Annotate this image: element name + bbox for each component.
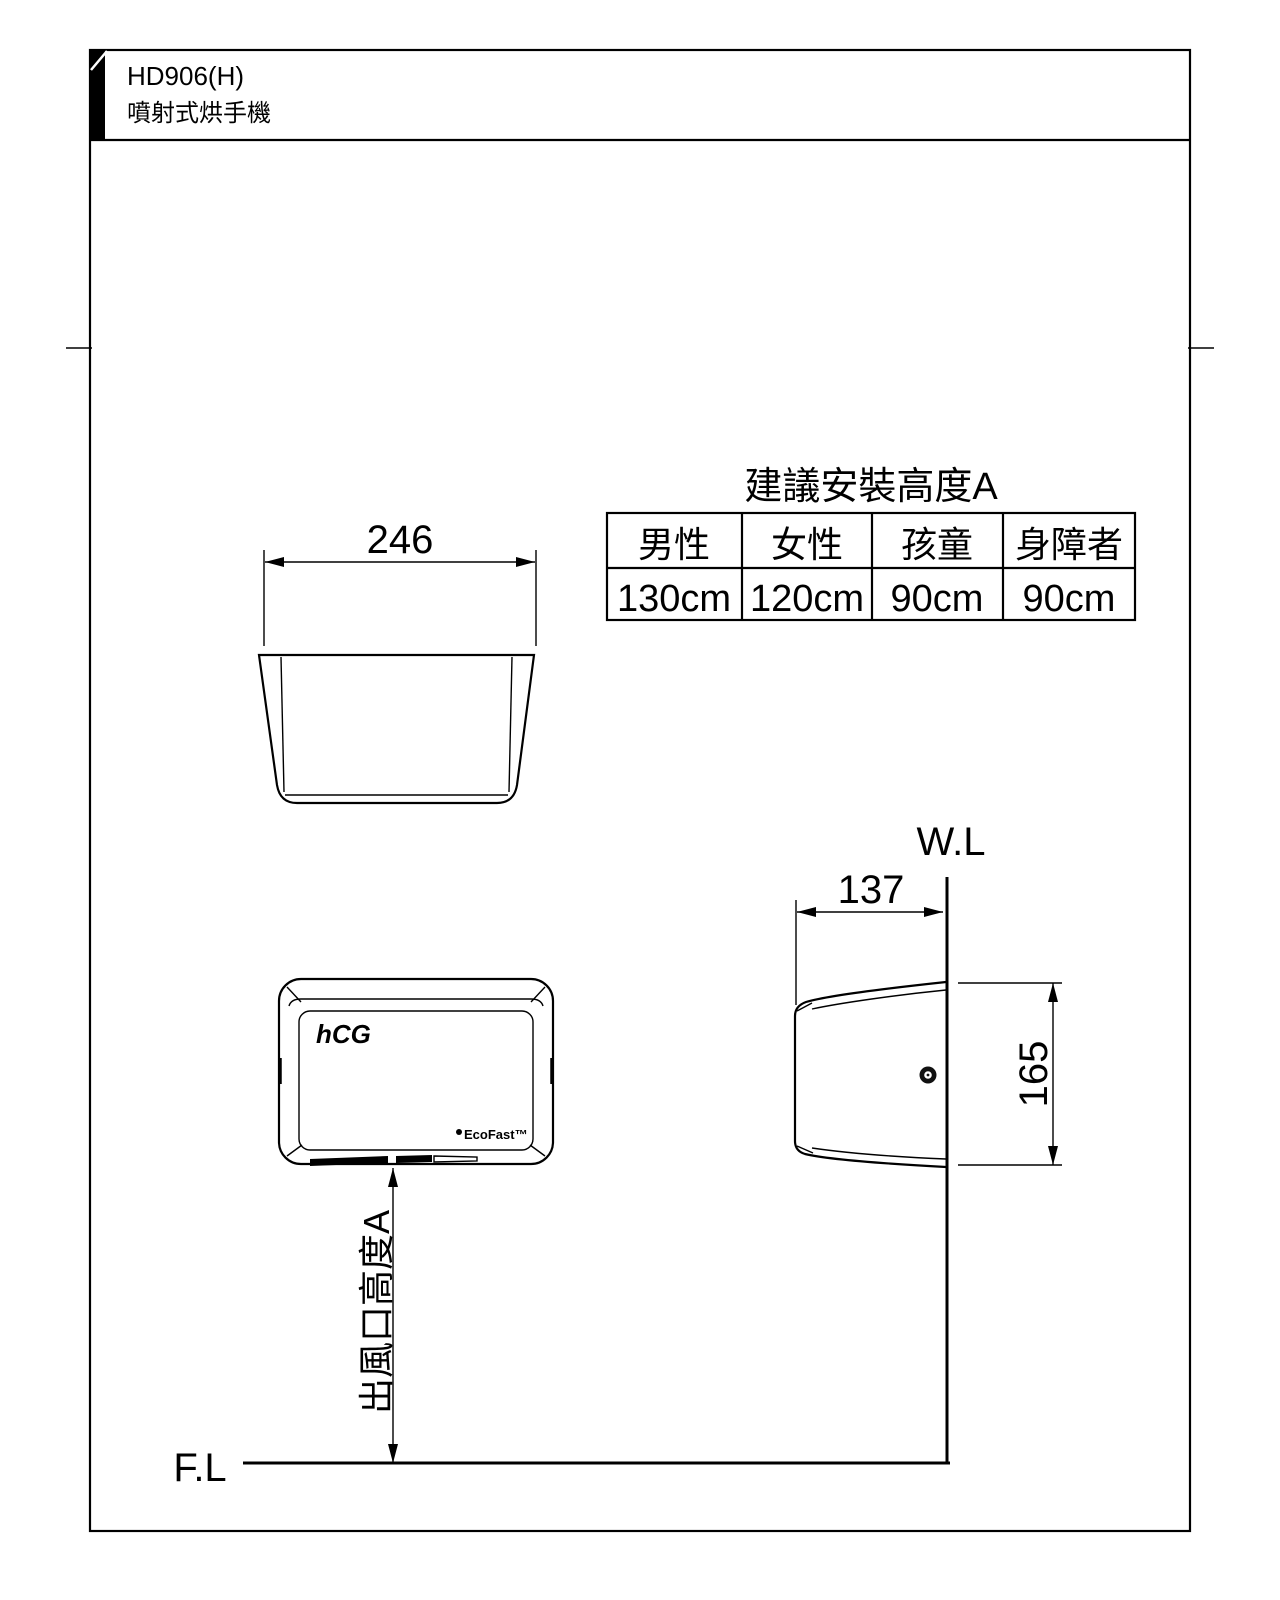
product-name: 噴射式烘手機: [127, 100, 271, 127]
screw-icon: [920, 1067, 937, 1084]
ecofast-badge: EcoFast™: [456, 1127, 528, 1142]
floor-line: F.L: [173, 1446, 950, 1490]
side-inner-top: [812, 990, 946, 1009]
table-value-female: 120cm: [750, 578, 864, 620]
leaf-icon: [456, 1129, 462, 1135]
table-value-male: 130cm: [617, 578, 731, 620]
model-number: HD906(H): [127, 61, 244, 91]
dim-246: 246: [264, 518, 536, 646]
table-header-disabled: 身障者: [1015, 524, 1123, 565]
title-block-bar: [91, 51, 105, 140]
technical-drawing: HD906(H) 噴射式烘手機 建議安裝高度A 男性 女性 孩童 身障者 130…: [0, 0, 1280, 1600]
title-block: HD906(H) 噴射式烘手機: [127, 61, 271, 127]
dim-165: 165: [958, 983, 1062, 1165]
side-view: 137 165: [795, 868, 1062, 1167]
brand-logo: hCG: [316, 1019, 371, 1049]
outlet-height-dim: 出風口高度A: [356, 1168, 398, 1463]
top-view-inner-left: [281, 657, 284, 792]
floor-line-label: F.L: [173, 1446, 226, 1490]
table-header-male: 男性: [638, 524, 710, 565]
table-value-disabled: 90cm: [1023, 578, 1116, 620]
wall-line-label: W.L: [917, 820, 986, 864]
table-header-female: 女性: [771, 524, 843, 565]
dim-165-label: 165: [1012, 1041, 1056, 1108]
install-height-table: 建議安裝高度A 男性 女性 孩童 身障者 130cm 120cm 90cm 90…: [607, 466, 1135, 620]
top-view: 246: [259, 518, 536, 803]
wall-line: W.L: [917, 820, 986, 1463]
dim-246-label: 246: [367, 518, 434, 562]
page-frame: [66, 50, 1214, 1531]
table-value-child: 90cm: [891, 578, 984, 620]
table-title: 建議安裝高度A: [744, 466, 998, 508]
front-top-band: [289, 999, 543, 1006]
table-header-child: 孩童: [901, 524, 973, 565]
border-frame: [90, 50, 1190, 1531]
front-view: hCG EcoFast™: [279, 979, 553, 1166]
top-view-outline: [259, 655, 534, 803]
dim-137-label: 137: [838, 868, 905, 912]
ecofast-label: EcoFast™: [464, 1127, 528, 1142]
outlet-height-label: 出風口高度A: [356, 1210, 397, 1414]
top-view-inner-right: [509, 657, 512, 792]
drawing-page: HD906(H) 噴射式烘手機 建議安裝高度A 男性 女性 孩童 身障者 130…: [0, 0, 1280, 1600]
